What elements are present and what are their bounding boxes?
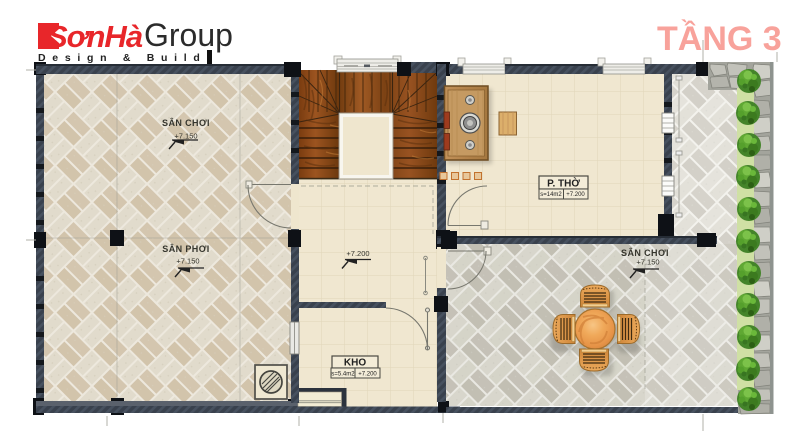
svg-text:P. THỜ: P. THỜ xyxy=(547,177,580,190)
svg-text:SơnHà: SơnHà xyxy=(47,19,143,54)
svg-text:s=14m2: s=14m2 xyxy=(540,192,562,198)
svg-text:SÂN PHƠI: SÂN PHƠI xyxy=(162,243,209,254)
svg-text:+7.200: +7.200 xyxy=(566,192,585,198)
svg-text:Design & Build: Design & Build xyxy=(38,52,206,64)
svg-text:Group: Group xyxy=(144,17,233,53)
svg-text:SÂN CHƠI: SÂN CHƠI xyxy=(162,117,210,128)
svg-text:s=5.4m2: s=5.4m2 xyxy=(331,372,355,378)
svg-text:+7.150: +7.150 xyxy=(176,257,199,266)
svg-text:+7.150: +7.150 xyxy=(636,258,659,267)
svg-text:KHO: KHO xyxy=(344,358,366,369)
svg-text:+7.200: +7.200 xyxy=(358,372,377,378)
svg-text:TẦNG 3: TẦNG 3 xyxy=(657,20,782,58)
svg-text:+7.150: +7.150 xyxy=(174,132,197,141)
svg-text:SÂN CHƠI: SÂN CHƠI xyxy=(621,247,669,258)
svg-text:+7.200: +7.200 xyxy=(346,249,369,258)
